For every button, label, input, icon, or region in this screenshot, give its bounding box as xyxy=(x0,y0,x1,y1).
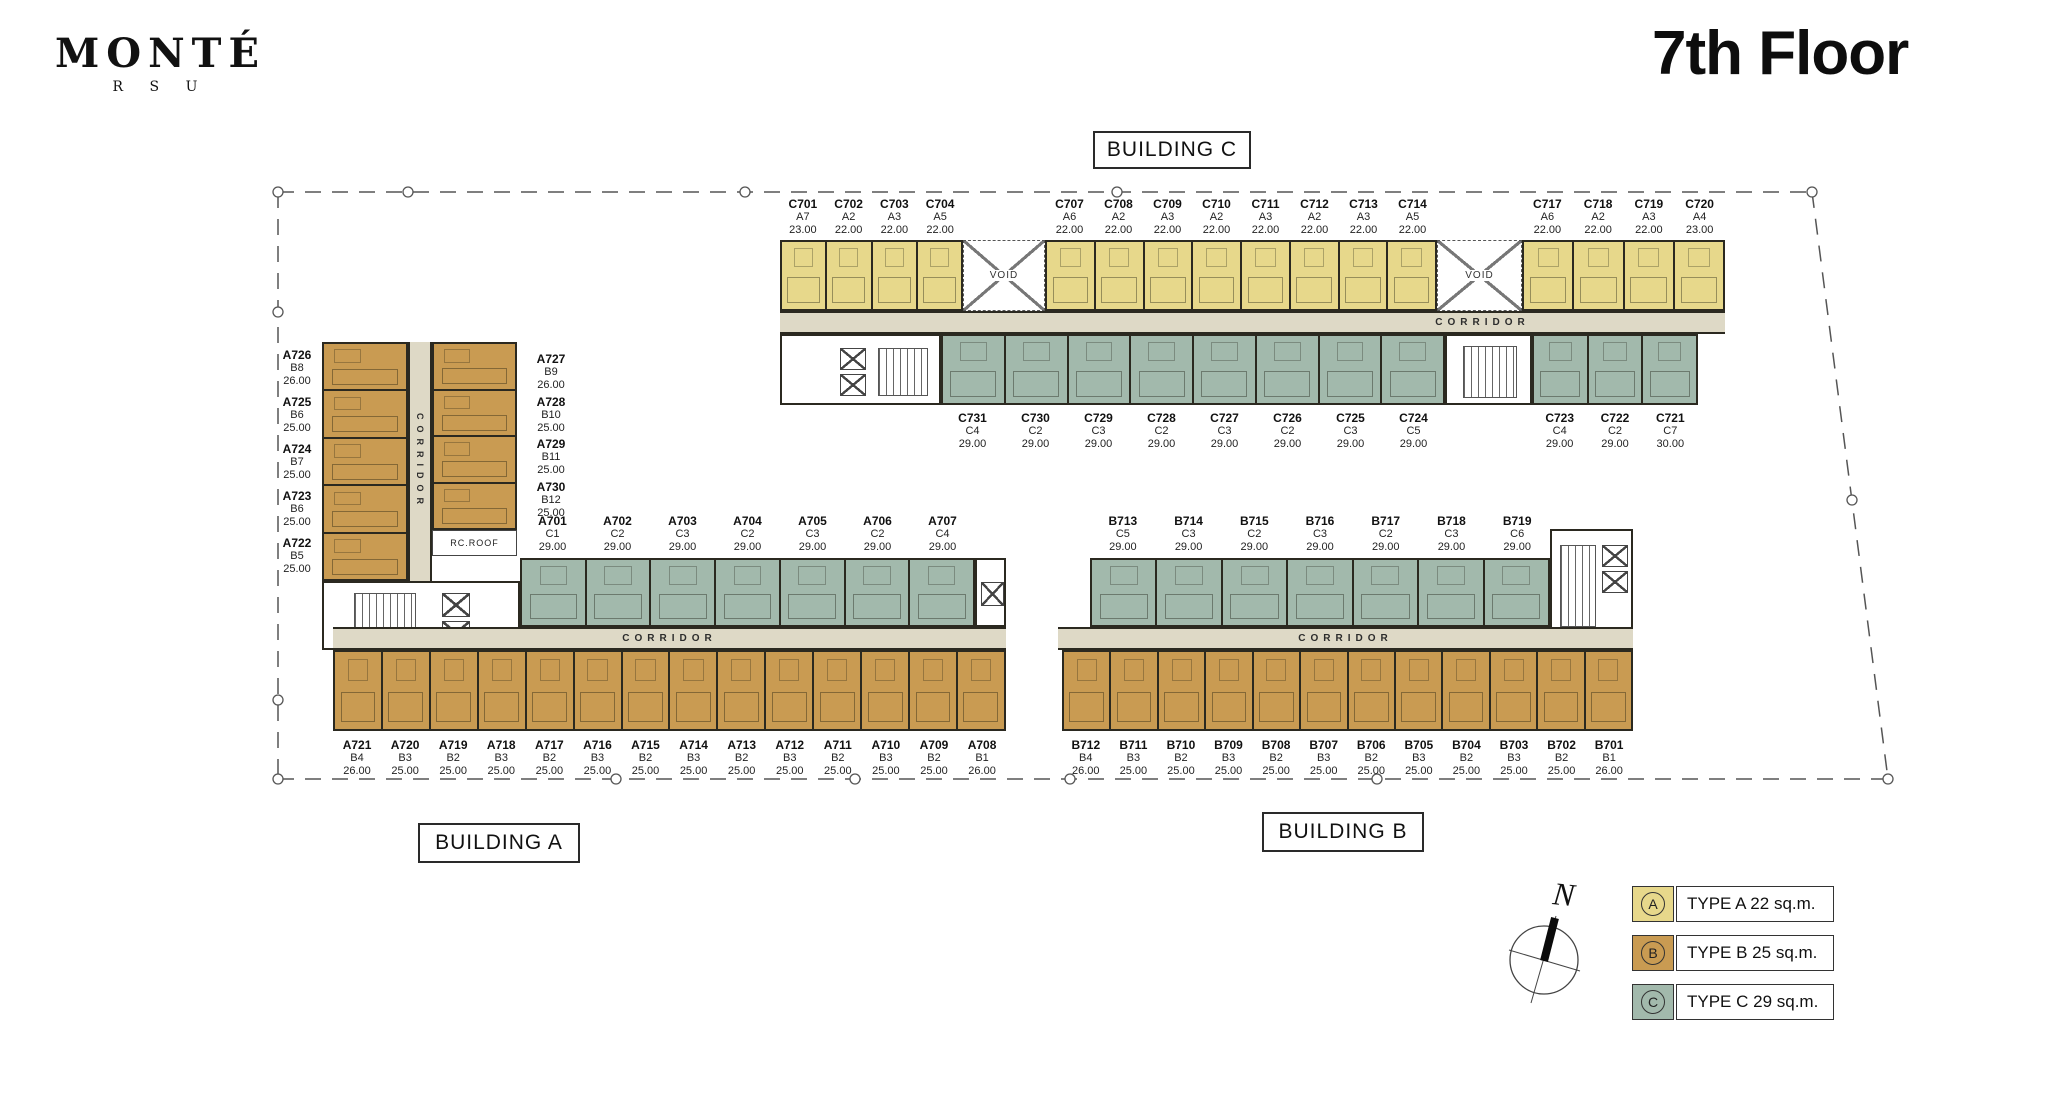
building-c-south-labels-2: C723C429.00C722C229.00C721C730.00 xyxy=(1532,411,1698,451)
unit-label-A701: A701C129.00 xyxy=(520,514,585,554)
wing-west-labels: A726B826.00A725B625.00A724B725.00A723B62… xyxy=(272,348,322,576)
unit-label-C722: C722C229.00 xyxy=(1587,411,1642,451)
building-a-south-labels: A721B426.00A720B325.00A719B225.00A718B32… xyxy=(333,738,1006,778)
void-label: VOID xyxy=(1463,270,1495,281)
unit-label-A723: A723B625.00 xyxy=(272,489,322,529)
unit-cell-A705 xyxy=(781,560,846,625)
elevator-icon xyxy=(1602,545,1628,567)
unit-cell-A713 xyxy=(718,652,766,729)
unit-label-B709: B709B325.00 xyxy=(1205,738,1253,778)
unit-cell-C707 xyxy=(1047,242,1096,309)
legend-item-B: BTYPE B 25 sq.m. xyxy=(1632,935,1834,971)
legend-item-A: ATYPE A 22 sq.m. xyxy=(1632,886,1834,922)
unit-label-C717: C717A622.00 xyxy=(1522,197,1573,237)
legend-swatch-B: B xyxy=(1632,935,1674,971)
building-a-north-labels: A701C129.00A702C229.00A703C329.00A704C22… xyxy=(520,514,975,554)
unit-cell-A719 xyxy=(431,652,479,729)
unit-label-B719: B719C629.00 xyxy=(1484,514,1550,554)
unit-label-C724: C724C529.00 xyxy=(1382,411,1445,451)
unit-cell-B704 xyxy=(1443,652,1490,729)
unit-cell-C704 xyxy=(918,242,961,309)
unit-cell-B719 xyxy=(1485,560,1548,625)
wing-east-units xyxy=(432,342,517,530)
void-area-2: VOID xyxy=(1437,240,1522,311)
unit-label-C725: C725C329.00 xyxy=(1319,411,1382,451)
rc-roof-label: RC.ROOF xyxy=(450,538,499,548)
logo-subtitle: R S U xyxy=(55,79,266,95)
unit-label-A728: A728B1025.00 xyxy=(522,395,580,435)
unit-label-A705: A705C329.00 xyxy=(780,514,845,554)
unit-label-A717: A717B225.00 xyxy=(525,738,573,778)
unit-cell-A723 xyxy=(324,486,406,533)
unit-label-A720: A720B325.00 xyxy=(381,738,429,778)
unit-cell-A730 xyxy=(434,484,515,529)
unit-cell-C701 xyxy=(782,242,827,309)
corridor-label: CORRIDOR xyxy=(1298,633,1392,644)
unit-label-A729: A729B1125.00 xyxy=(522,437,580,477)
unit-cell-C730 xyxy=(1006,336,1069,403)
wing-west-units xyxy=(322,342,408,581)
unit-label-B704: B704B225.00 xyxy=(1443,738,1491,778)
unit-label-B715: B715C229.00 xyxy=(1221,514,1287,554)
building-b-north-units xyxy=(1090,558,1550,627)
unit-cell-C728 xyxy=(1131,336,1194,403)
unit-label-C713: C713A322.00 xyxy=(1339,197,1388,237)
unit-label-A713: A713B225.00 xyxy=(718,738,766,778)
unit-label-B708: B708B225.00 xyxy=(1252,738,1300,778)
unit-cell-A703 xyxy=(651,560,716,625)
legend-label-C: TYPE C 29 sq.m. xyxy=(1676,984,1834,1020)
unit-label-C703: C703A322.00 xyxy=(872,197,918,237)
legend-swatch-C: C xyxy=(1632,984,1674,1020)
building-c-label-text: BUILDING C xyxy=(1107,138,1237,162)
unit-label-A716: A716B325.00 xyxy=(573,738,621,778)
unit-label-A706: A706C229.00 xyxy=(845,514,910,554)
unit-cell-A726 xyxy=(324,344,406,391)
unit-label-B703: B703B325.00 xyxy=(1490,738,1538,778)
unit-cell-A721 xyxy=(335,652,383,729)
building-a-label: BUILDING A xyxy=(418,823,580,863)
stair-icon xyxy=(1463,346,1517,398)
unit-label-A715: A715B225.00 xyxy=(621,738,669,778)
unit-cell-C724 xyxy=(1382,336,1443,403)
unit-cell-C720 xyxy=(1675,242,1723,309)
unit-cell-A709 xyxy=(910,652,958,729)
unit-label-A708: A708B126.00 xyxy=(958,738,1006,778)
stair-icon xyxy=(878,348,928,396)
unit-cell-A701 xyxy=(522,560,587,625)
unit-cell-B709 xyxy=(1206,652,1253,729)
unit-label-A722: A722B525.00 xyxy=(272,536,322,576)
corridor-label: CORRIDOR xyxy=(415,413,425,510)
building-c-north-units-2 xyxy=(1045,240,1437,311)
unit-label-B713: B713C529.00 xyxy=(1090,514,1156,554)
building-b-label: BUILDING B xyxy=(1262,812,1424,852)
wing-east-labels: A727B926.00A728B1025.00A729B1125.00A730B… xyxy=(522,352,580,520)
corridor-label: CORRIDOR xyxy=(1435,317,1529,328)
building-c-corridor: CORRIDOR xyxy=(780,311,1725,334)
unit-cell-C717 xyxy=(1524,242,1574,309)
building-c-north-labels-2: C707A622.00C708A222.00C709A322.00C710A22… xyxy=(1045,197,1437,237)
unit-label-A702: A702C229.00 xyxy=(585,514,650,554)
unit-label-C718: C718A222.00 xyxy=(1573,197,1624,237)
elevator-icon xyxy=(1602,571,1628,593)
unit-label-A704: A704C229.00 xyxy=(715,514,780,554)
building-a-corridor: CORRIDOR xyxy=(333,627,1006,650)
legend-swatch-A: A xyxy=(1632,886,1674,922)
unit-cell-B701 xyxy=(1586,652,1631,729)
building-b-corridor: CORRIDOR xyxy=(1058,627,1633,650)
unit-cell-C702 xyxy=(827,242,872,309)
unit-label-C711: C711A322.00 xyxy=(1241,197,1290,237)
building-c-south-labels-1: C731C429.00C730C229.00C729C329.00C728C22… xyxy=(941,411,1445,451)
unit-cell-C703 xyxy=(873,242,918,309)
legend-label-B: TYPE B 25 sq.m. xyxy=(1676,935,1834,971)
building-c-north-labels-1: C701A723.00C702A222.00C703A322.00C704A52… xyxy=(780,197,963,237)
unit-label-B702: B702B225.00 xyxy=(1538,738,1586,778)
unit-cell-B718 xyxy=(1419,560,1484,625)
unit-label-A727: A727B926.00 xyxy=(522,352,580,392)
unit-cell-C721 xyxy=(1643,336,1696,403)
unit-label-C721: C721C730.00 xyxy=(1643,411,1698,451)
unit-label-A707: A707C429.00 xyxy=(910,514,975,554)
unit-cell-B713 xyxy=(1092,560,1157,625)
unit-cell-B706 xyxy=(1349,652,1396,729)
unit-cell-B711 xyxy=(1111,652,1158,729)
unit-cell-C723 xyxy=(1534,336,1589,403)
unit-cell-C710 xyxy=(1193,242,1242,309)
logo-title: MONTÉ xyxy=(55,30,266,77)
compass: N xyxy=(1492,872,1607,1017)
unit-cell-A712 xyxy=(766,652,814,729)
unit-cell-A728 xyxy=(434,391,515,438)
elevator-icon xyxy=(442,593,470,617)
unit-cell-C726 xyxy=(1257,336,1320,403)
unit-cell-C722 xyxy=(1589,336,1644,403)
unit-cell-A727 xyxy=(434,344,515,391)
unit-cell-A708 xyxy=(958,652,1004,729)
building-c-west-core xyxy=(780,334,941,405)
unit-cell-C713 xyxy=(1340,242,1389,309)
elevator-icon xyxy=(840,348,866,370)
unit-label-B717: B717C229.00 xyxy=(1353,514,1419,554)
unit-cell-B712 xyxy=(1064,652,1111,729)
unit-cell-C708 xyxy=(1096,242,1145,309)
unit-cell-C725 xyxy=(1320,336,1383,403)
unit-label-C728: C728C229.00 xyxy=(1130,411,1193,451)
unit-cell-C711 xyxy=(1242,242,1291,309)
building-c-label: BUILDING C xyxy=(1093,131,1251,169)
unit-cell-A717 xyxy=(527,652,575,729)
unit-cell-A725 xyxy=(324,391,406,438)
unit-label-C704: C704A522.00 xyxy=(917,197,963,237)
unit-cell-A716 xyxy=(575,652,623,729)
unit-cell-A718 xyxy=(479,652,527,729)
unit-label-C701: C701A723.00 xyxy=(780,197,826,237)
corridor-label: CORRIDOR xyxy=(622,633,716,644)
unit-cell-A704 xyxy=(716,560,781,625)
unit-cell-C719 xyxy=(1625,242,1675,309)
unit-label-A721: A721B426.00 xyxy=(333,738,381,778)
void-label: VOID xyxy=(988,270,1020,281)
unit-cell-B708 xyxy=(1254,652,1301,729)
unit-label-A709: A709B225.00 xyxy=(910,738,958,778)
unit-cell-C727 xyxy=(1194,336,1257,403)
unit-label-C726: C726C229.00 xyxy=(1256,411,1319,451)
building-c-north-labels-3: C717A622.00C718A222.00C719A322.00C720A42… xyxy=(1522,197,1725,237)
unit-cell-B716 xyxy=(1288,560,1353,625)
building-a-east-core xyxy=(975,558,1006,627)
unit-label-C731: C731C429.00 xyxy=(941,411,1004,451)
rc-roof: RC.ROOF xyxy=(432,530,517,556)
unit-cell-A706 xyxy=(846,560,911,625)
unit-label-C730: C730C229.00 xyxy=(1004,411,1067,451)
unit-cell-B717 xyxy=(1354,560,1419,625)
unit-label-B718: B718C329.00 xyxy=(1419,514,1485,554)
unit-label-A718: A718B325.00 xyxy=(477,738,525,778)
unit-label-B714: B714C329.00 xyxy=(1156,514,1222,554)
unit-cell-A722 xyxy=(324,534,406,579)
unit-label-A725: A725B625.00 xyxy=(272,395,322,435)
unit-label-B710: B710B225.00 xyxy=(1157,738,1205,778)
unit-cell-C718 xyxy=(1574,242,1624,309)
page-title: 7th Floor xyxy=(1652,18,1908,89)
unit-cell-B710 xyxy=(1159,652,1206,729)
building-b-south-units xyxy=(1062,650,1633,731)
unit-cell-B715 xyxy=(1223,560,1288,625)
elevator-icon xyxy=(981,582,1004,606)
unit-label-C708: C708A222.00 xyxy=(1094,197,1143,237)
unit-cell-B702 xyxy=(1538,652,1585,729)
building-b-north-labels: B713C529.00B714C329.00B715C229.00B716C32… xyxy=(1090,514,1550,554)
unit-cell-B705 xyxy=(1396,652,1443,729)
floor-plan-canvas: MONTÉ R S U 7th Floor BUILDING C BUILDIN… xyxy=(0,0,2048,1120)
unit-cell-C714 xyxy=(1388,242,1435,309)
legend-item-C: CTYPE C 29 sq.m. xyxy=(1632,984,1834,1020)
unit-cell-C709 xyxy=(1145,242,1194,309)
unit-cell-A714 xyxy=(670,652,718,729)
unit-label-B701: B701B126.00 xyxy=(1585,738,1633,778)
unit-cell-A724 xyxy=(324,439,406,486)
wing-corridor: CORRIDOR xyxy=(408,342,432,581)
unit-label-A703: A703C329.00 xyxy=(650,514,715,554)
unit-label-C707: C707A622.00 xyxy=(1045,197,1094,237)
unit-label-A711: A711B225.00 xyxy=(814,738,862,778)
building-a-label-text: BUILDING A xyxy=(435,831,563,855)
unit-cell-A702 xyxy=(587,560,652,625)
unit-cell-A710 xyxy=(862,652,910,729)
unit-cell-B714 xyxy=(1157,560,1222,625)
elevator-icon xyxy=(840,374,866,396)
unit-label-C710: C710A222.00 xyxy=(1192,197,1241,237)
unit-cell-A715 xyxy=(623,652,671,729)
unit-cell-A711 xyxy=(814,652,862,729)
building-b-east-core xyxy=(1550,529,1633,640)
unit-label-C709: C709A322.00 xyxy=(1143,197,1192,237)
void-area-1: VOID xyxy=(963,240,1045,311)
compass-north-label: N xyxy=(1550,875,1578,913)
building-c-north-units-3 xyxy=(1522,240,1725,311)
unit-label-C729: C729C329.00 xyxy=(1067,411,1130,451)
unit-label-B712: B712B426.00 xyxy=(1062,738,1110,778)
unit-label-B707: B707B325.00 xyxy=(1300,738,1348,778)
unit-cell-A707 xyxy=(910,560,973,625)
unit-label-B706: B706B225.00 xyxy=(1347,738,1395,778)
building-c-north-units-1 xyxy=(780,240,963,311)
unit-label-A719: A719B225.00 xyxy=(429,738,477,778)
unit-cell-B703 xyxy=(1491,652,1538,729)
building-a-south-units xyxy=(333,650,1006,731)
unit-label-C714: C714A522.00 xyxy=(1388,197,1437,237)
building-a-north-units xyxy=(520,558,975,627)
unit-label-C723: C723C429.00 xyxy=(1532,411,1587,451)
unit-label-A726: A726B826.00 xyxy=(272,348,322,388)
building-b-south-labels: B712B426.00B711B325.00B710B225.00B709B32… xyxy=(1062,738,1633,778)
unit-cell-C712 xyxy=(1291,242,1340,309)
logo: MONTÉ R S U xyxy=(55,30,266,95)
unit-label-C702: C702A222.00 xyxy=(826,197,872,237)
building-c-south-units-2 xyxy=(1532,334,1698,405)
building-c-south-units-1 xyxy=(941,334,1445,405)
unit-cell-C731 xyxy=(943,336,1006,403)
unit-label-B705: B705B325.00 xyxy=(1395,738,1443,778)
legend: ATYPE A 22 sq.m.BTYPE B 25 sq.m.CTYPE C … xyxy=(1632,886,1834,1020)
building-b-label-text: BUILDING B xyxy=(1278,820,1407,844)
building-c-mid-core xyxy=(1445,334,1532,405)
unit-label-C727: C727C329.00 xyxy=(1193,411,1256,451)
unit-label-A712: A712B325.00 xyxy=(766,738,814,778)
unit-label-B716: B716C329.00 xyxy=(1287,514,1353,554)
unit-label-C712: C712A222.00 xyxy=(1290,197,1339,237)
unit-cell-A720 xyxy=(383,652,431,729)
unit-cell-A729 xyxy=(434,437,515,484)
unit-cell-C729 xyxy=(1069,336,1132,403)
unit-label-A710: A710B325.00 xyxy=(862,738,910,778)
legend-label-A: TYPE A 22 sq.m. xyxy=(1676,886,1834,922)
unit-label-A714: A714B325.00 xyxy=(670,738,718,778)
unit-label-C720: C720A423.00 xyxy=(1674,197,1725,237)
unit-cell-B707 xyxy=(1301,652,1348,729)
unit-label-C719: C719A322.00 xyxy=(1624,197,1675,237)
unit-label-B711: B711B325.00 xyxy=(1110,738,1158,778)
stair-icon xyxy=(1560,545,1596,627)
unit-label-A724: A724B725.00 xyxy=(272,442,322,482)
